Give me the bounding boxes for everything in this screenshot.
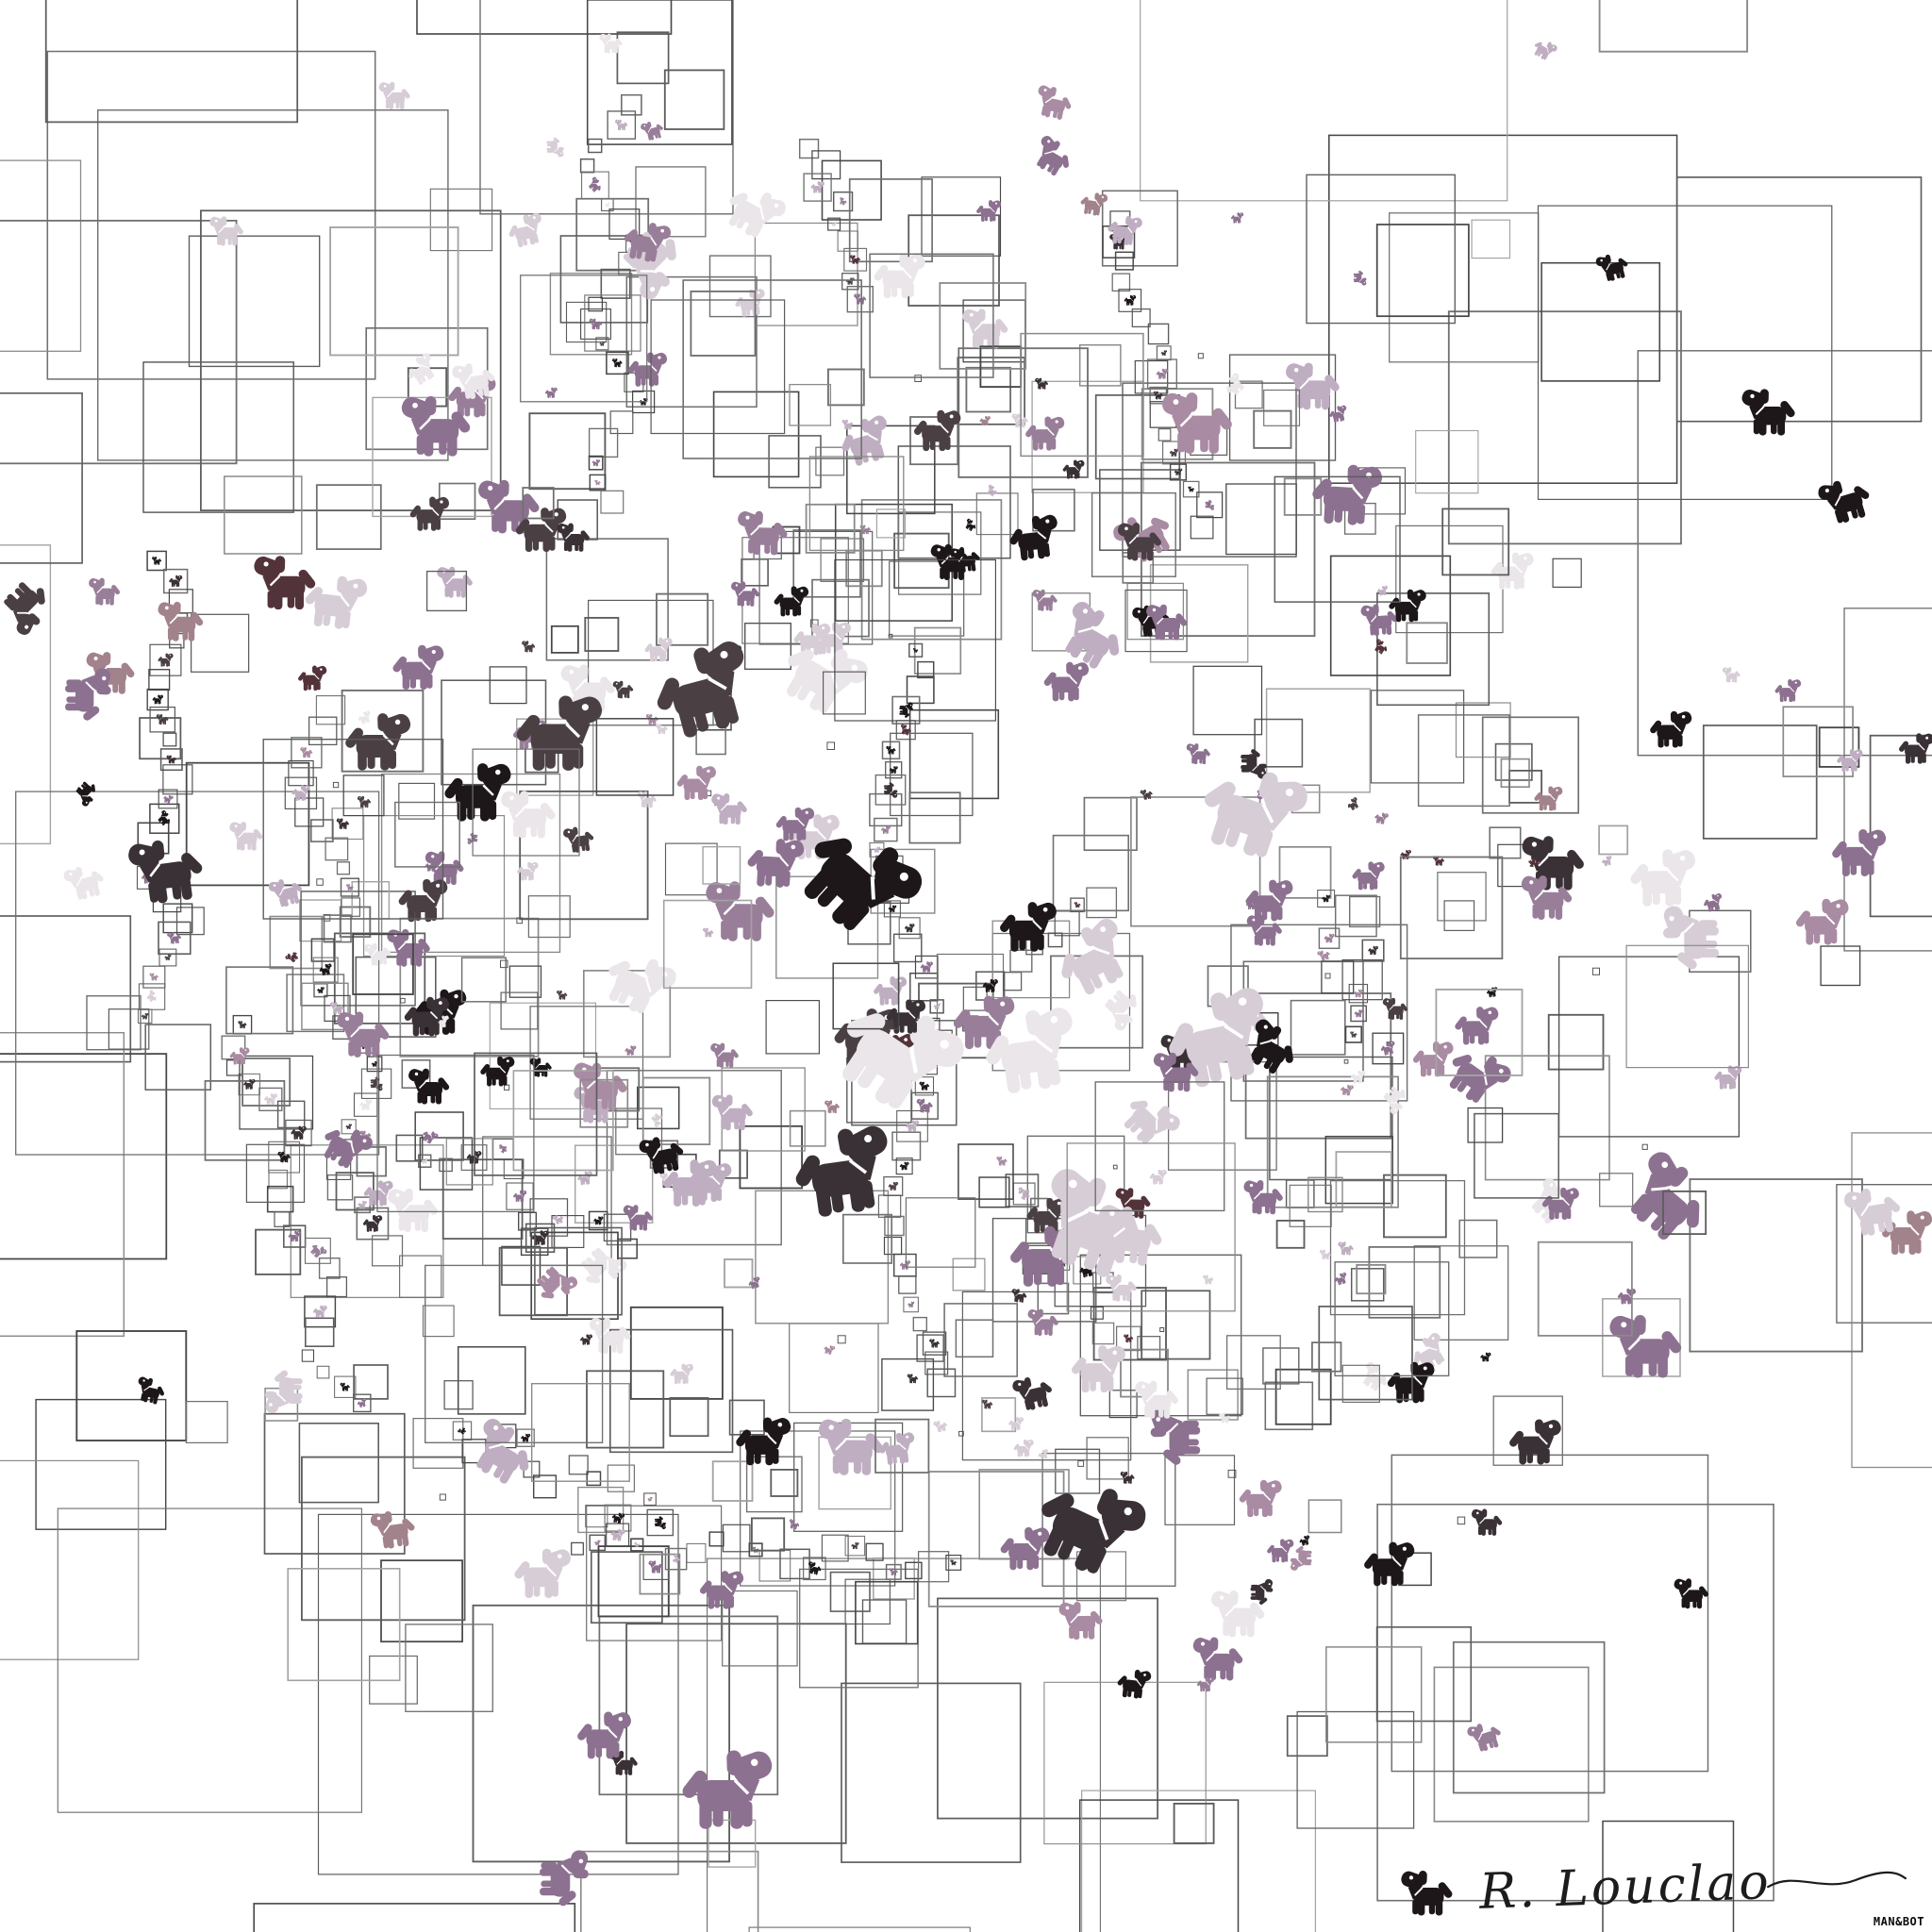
- dog-icon: [407, 1063, 450, 1105]
- dog-icon: [356, 708, 374, 725]
- dog-icon: [932, 1417, 949, 1433]
- dog-icon: [59, 856, 108, 904]
- square-outline: [617, 32, 668, 83]
- dog-icon: [824, 1098, 840, 1113]
- square-outline: [966, 368, 1010, 412]
- square-outline: [333, 782, 338, 787]
- dog-icon: [314, 1110, 380, 1175]
- square-outline: [0, 160, 81, 351]
- dog-icon: [283, 948, 300, 965]
- square-outline: [769, 436, 821, 488]
- dog-icon: [1011, 411, 1028, 427]
- square-outline: [1174, 1804, 1214, 1843]
- dog-icon: [595, 934, 687, 1024]
- square-outline: [377, 1056, 534, 1212]
- square-outline: [578, 1488, 624, 1533]
- dog-icon: [647, 1496, 653, 1501]
- dog-icon: [71, 777, 104, 810]
- dog-icon: [888, 1180, 898, 1191]
- dog-icon: [123, 824, 208, 908]
- dog-icon: [599, 341, 605, 346]
- square-outline: [330, 227, 458, 356]
- square-outline: [918, 662, 934, 678]
- square-outline: [1004, 973, 1022, 991]
- square-outline: [741, 559, 768, 586]
- square-outline: [730, 1400, 764, 1434]
- dog-icon: [367, 1502, 418, 1552]
- square-outline: [1457, 1517, 1465, 1524]
- square-outline: [708, 1558, 1101, 1932]
- square-outline: [327, 1277, 347, 1297]
- dog-icon: [152, 693, 163, 705]
- square-outline: [306, 1318, 334, 1346]
- square-outline: [246, 1144, 304, 1202]
- dog-icon: [884, 782, 900, 799]
- square-outline: [425, 1265, 603, 1442]
- square-outline: [1082, 1790, 1316, 1932]
- dog-icon: [575, 1704, 633, 1758]
- square-outline: [354, 1365, 388, 1399]
- square-outline: [430, 189, 491, 250]
- square-outline: [1109, 1391, 1137, 1418]
- square-outline: [1113, 1165, 1117, 1169]
- square-outline: [36, 1400, 166, 1530]
- square-outline: [87, 996, 141, 1050]
- dog-icon: [1031, 586, 1058, 611]
- square-outline: [572, 1542, 584, 1555]
- dog-icon: [1399, 1863, 1454, 1915]
- square-outline: [1226, 484, 1297, 555]
- square-outline: [226, 967, 293, 1034]
- dog-icon: [580, 1333, 593, 1345]
- square-outline: [505, 1085, 509, 1090]
- dog-icon: [905, 923, 915, 933]
- dog-icon: [300, 563, 372, 632]
- square-outline: [1539, 206, 1832, 499]
- square-outline: [1852, 1133, 1932, 1468]
- square-outline: [0, 1054, 166, 1258]
- square-outline: [401, 998, 406, 1003]
- dog-icon: [1628, 841, 1697, 907]
- square-outline: [1198, 354, 1203, 358]
- square-outline: [521, 275, 647, 402]
- square-outline: [1434, 1667, 1588, 1821]
- square-outline: [590, 428, 618, 457]
- dog-icon: [1327, 402, 1349, 424]
- dog-icon: [166, 929, 182, 944]
- dog-icon: [1242, 1174, 1284, 1214]
- square-outline: [288, 1569, 400, 1681]
- dog-icon: [982, 1398, 993, 1408]
- square-outline: [1377, 593, 1489, 705]
- dog-icon: [1649, 705, 1693, 747]
- square-outline: [316, 696, 344, 724]
- dog-icon: [317, 986, 325, 993]
- dog-icon: [1244, 873, 1294, 921]
- dog-icon: [1231, 210, 1244, 223]
- square-outline: [1322, 961, 1354, 993]
- square-outline: [1483, 717, 1579, 813]
- dog-icon: [612, 358, 623, 368]
- square-outline: [1287, 1180, 1314, 1207]
- dog-icon: [833, 406, 898, 469]
- square-outline: [1268, 1076, 1398, 1207]
- square-outline: [1501, 759, 1529, 788]
- dog-icon: [615, 118, 628, 130]
- square-outline: [225, 476, 302, 554]
- dog-icon: [1149, 1167, 1167, 1184]
- square-outline: [827, 742, 835, 750]
- dog-icon: [1376, 584, 1390, 596]
- dog-icon: [0, 574, 64, 644]
- dog-icon: [1600, 854, 1614, 867]
- square-outline: [1191, 516, 1213, 539]
- dog-icon: [513, 1189, 527, 1202]
- dog-icon: [1592, 246, 1632, 285]
- square-outline: [915, 375, 922, 382]
- square-outline: [275, 1212, 290, 1227]
- dog-icon: [545, 386, 558, 398]
- dog-icon: [1206, 500, 1216, 511]
- square-outline: [143, 362, 293, 512]
- square-outline: [399, 783, 435, 819]
- square-outline: [299, 1424, 378, 1503]
- square-outline: [927, 1369, 955, 1396]
- dog-icon: [1898, 728, 1932, 764]
- dog-icon: [899, 1160, 909, 1170]
- square-outline: [651, 300, 785, 434]
- dog-icon: [345, 1123, 352, 1129]
- square-outline: [710, 256, 772, 317]
- square-outline: [794, 1423, 903, 1531]
- dog-icon: [359, 1097, 373, 1109]
- dog-icon: [655, 722, 668, 734]
- dog-icon: [851, 1541, 859, 1549]
- square-outline: [1553, 558, 1581, 587]
- dog-icon: [919, 1080, 929, 1091]
- generative-artwork: [0, 0, 1932, 1932]
- dog-icon: [1486, 985, 1499, 997]
- dog-icon: [900, 1258, 911, 1269]
- dog-icon: [1338, 1240, 1354, 1256]
- square-outline: [163, 904, 192, 933]
- dog-icon: [1794, 891, 1850, 945]
- square-outline: [1312, 1342, 1341, 1372]
- dog-icon: [718, 170, 795, 246]
- dog-icon: [1188, 486, 1194, 492]
- square-outline: [1087, 888, 1117, 918]
- square-outline: [532, 1384, 630, 1482]
- square-outline: [953, 1258, 985, 1291]
- square-outline: [909, 792, 959, 842]
- dog-icon: [730, 577, 760, 607]
- square-outline: [856, 1582, 918, 1644]
- square-outline: [670, 1398, 708, 1436]
- square-outline: [341, 908, 371, 938]
- square-outline: [1267, 689, 1371, 792]
- square-outline: [687, 1543, 706, 1562]
- square-outline: [569, 1456, 588, 1474]
- square-outline: [1010, 950, 1032, 972]
- dog-icon: [1238, 1474, 1283, 1517]
- dog-icon: [1354, 1008, 1363, 1017]
- square-outline: [490, 667, 526, 704]
- dog-icon: [1812, 466, 1876, 528]
- dog-icon: [1120, 1470, 1135, 1484]
- dog-icon: [208, 211, 244, 245]
- square-outline: [1414, 1246, 1508, 1341]
- square-outline: [546, 539, 668, 660]
- square-outline: [186, 1402, 227, 1443]
- dog-icon: [297, 661, 327, 691]
- dog-icon: [1480, 1351, 1491, 1361]
- dog-icon: [982, 977, 998, 992]
- square-outline: [1377, 1505, 1774, 1901]
- square-outline: [1490, 827, 1521, 858]
- dog-icon: [312, 1304, 327, 1318]
- square-outline: [740, 1126, 802, 1189]
- dog-icon: [356, 1396, 368, 1408]
- dog-icon: [1174, 467, 1183, 475]
- dog-icon: [907, 1373, 918, 1384]
- dog-icon: [336, 816, 349, 828]
- dog-icon: [243, 1077, 256, 1090]
- square-outline: [357, 1147, 386, 1176]
- dog-icon: [586, 175, 607, 195]
- square-outline: [1704, 725, 1817, 839]
- dog-icon: [340, 1381, 350, 1391]
- square-outline: [1472, 220, 1509, 258]
- dog-icon: [1701, 890, 1724, 912]
- square-outline: [145, 1024, 210, 1090]
- square-outline: [1188, 1370, 1238, 1420]
- square-outline: [910, 974, 938, 1001]
- square-outline: [240, 1056, 313, 1129]
- square-outline: [724, 1259, 753, 1288]
- square-outline: [76, 1331, 186, 1441]
- square-outline: [587, 1371, 663, 1447]
- square-outline: [98, 110, 448, 460]
- dog-icon: [1124, 1333, 1134, 1342]
- square-outline: [790, 385, 830, 425]
- square-outline: [254, 1904, 575, 1932]
- square-outline: [910, 710, 999, 799]
- dog-icon: [1042, 656, 1091, 701]
- square-outline: [552, 626, 578, 653]
- square-outline: [400, 1256, 441, 1297]
- square-outline: [908, 676, 934, 703]
- dog-icon: [530, 1258, 585, 1313]
- square-outline: [309, 717, 337, 744]
- square-outline: [587, 1472, 600, 1485]
- dog-icon: [950, 1558, 957, 1565]
- square-outline: [906, 1562, 922, 1578]
- dog-icon: [996, 1155, 1008, 1165]
- dog-icon: [149, 972, 158, 980]
- square-outline: [980, 346, 1021, 387]
- dog-icon: [1160, 349, 1167, 356]
- square-outline: [898, 446, 1010, 558]
- dog-icon: [626, 347, 668, 387]
- square-outline: [752, 1518, 784, 1550]
- dog-icon: [504, 207, 548, 250]
- square-outline: [187, 763, 309, 886]
- square-outline: [320, 1258, 340, 1278]
- dog-icon: [703, 926, 714, 937]
- dogs-layer: [0, 0, 1932, 1932]
- square-outline: [938, 1598, 1158, 1818]
- square-outline: [529, 413, 605, 489]
- dog-icon: [1251, 1578, 1277, 1606]
- dog-icon: [436, 561, 474, 597]
- dog-icon: [329, 1000, 344, 1014]
- square-outline: [206, 1081, 285, 1160]
- dog-icon: [576, 1169, 593, 1186]
- dog-icon: [357, 794, 371, 808]
- dog-icon: [1316, 947, 1332, 962]
- square-outline: [519, 1212, 537, 1230]
- dog-icon: [456, 1424, 467, 1436]
- square-outline: [0, 1033, 124, 1337]
- square-outline: [1549, 1015, 1604, 1070]
- square-outline: [958, 1144, 1013, 1199]
- dog-icon: [841, 418, 854, 429]
- square-outline: [149, 670, 170, 691]
- dog-icon: [377, 77, 410, 109]
- dog-icon: [556, 519, 591, 552]
- square-outline: [919, 1552, 949, 1582]
- dog-icon: [998, 894, 1058, 952]
- dog-icon: [144, 988, 160, 1004]
- dog-icon: [854, 292, 867, 305]
- square-outline: [1038, 1283, 1068, 1313]
- square-outline: [622, 95, 641, 115]
- dog-icon: [1013, 1437, 1034, 1457]
- dog-icon: [709, 1039, 740, 1067]
- dog-icon: [605, 202, 610, 208]
- square-outline: [1325, 974, 1330, 978]
- dog-icon: [999, 1520, 1051, 1570]
- signature-flourish-icon: [1765, 1865, 1907, 1898]
- square-outline: [1541, 263, 1659, 381]
- square-outline: [581, 1852, 758, 1932]
- square-outline: [1254, 411, 1291, 448]
- dog-icon: [498, 1144, 507, 1154]
- dog-icon: [521, 1432, 531, 1441]
- dog-icon: [1607, 1305, 1683, 1377]
- square-outline: [917, 1335, 943, 1361]
- square-outline: [302, 1350, 313, 1361]
- square-outline: [1095, 1082, 1224, 1211]
- square-outline: [1263, 1348, 1299, 1384]
- square-outline: [1559, 957, 1740, 1137]
- dog-icon: [1350, 1030, 1357, 1037]
- square-outline: [636, 167, 706, 237]
- dog-icon: [912, 404, 962, 451]
- dog-icon: [1024, 411, 1066, 451]
- dog-icon: [1026, 1305, 1059, 1336]
- dog-icon: [1010, 1286, 1028, 1303]
- dog-icon: [975, 196, 1002, 221]
- square-outline: [723, 1524, 750, 1552]
- dog-icon: [838, 195, 848, 206]
- square-outline: [190, 236, 320, 366]
- square-outline: [780, 1549, 809, 1578]
- dog-icon: [264, 1091, 278, 1105]
- dog-icon: [1673, 1574, 1709, 1608]
- watermark: MAN&BOT: [1874, 1916, 1924, 1927]
- dog-icon: [1654, 904, 1719, 972]
- square-outline: [1092, 1323, 1113, 1343]
- square-outline: [800, 1569, 918, 1687]
- dog-icon: [1062, 457, 1085, 478]
- square-outline: [1350, 897, 1380, 927]
- dog-icon: [1139, 787, 1153, 801]
- square-outline: [1054, 836, 1129, 911]
- square-outline: [343, 775, 384, 816]
- dog-icon: [1379, 1039, 1397, 1057]
- dog-icon: [442, 754, 513, 822]
- square-outline: [1158, 429, 1171, 441]
- dog-icon: [1612, 1136, 1730, 1253]
- dog-icon: [1124, 293, 1136, 306]
- square-outline: [201, 210, 501, 510]
- dog-icon: [1324, 932, 1335, 942]
- square-outline: [1600, 0, 1748, 52]
- square-outline: [1291, 1001, 1345, 1055]
- dog-icon: [1714, 1061, 1743, 1089]
- dog-icon: [1266, 1535, 1294, 1562]
- dog-icon: [831, 222, 837, 226]
- dog-icon: [1454, 1000, 1500, 1044]
- dog-icon: [886, 744, 896, 754]
- dog-icon: [238, 1020, 247, 1028]
- dog-icon: [655, 1516, 668, 1530]
- square-outline: [791, 1111, 825, 1146]
- square-outline: [1844, 608, 1932, 951]
- square-outline: [163, 733, 176, 746]
- square-outline: [0, 916, 130, 1062]
- square-outline: [1227, 1336, 1281, 1390]
- square-outline: [601, 491, 624, 513]
- square-outline: [831, 1573, 871, 1612]
- dog-icon: [155, 808, 175, 828]
- square-outline: [1160, 1328, 1164, 1332]
- square-outline: [1078, 1461, 1084, 1467]
- dog-icon: [1774, 675, 1802, 702]
- dog-icon: [773, 581, 809, 616]
- dog-icon: [1219, 369, 1249, 399]
- dog-icon: [644, 634, 674, 662]
- square-outline: [1599, 825, 1627, 854]
- dog-icon: [1830, 822, 1888, 876]
- square-outline: [1270, 1058, 1392, 1180]
- square-outline: [1116, 252, 1134, 270]
- dog-icon: [876, 1426, 918, 1466]
- square-outline: [317, 879, 324, 886]
- dog-icon: [639, 115, 666, 142]
- dog-icon: [158, 651, 174, 667]
- square-outline: [800, 140, 819, 158]
- dog-icon: [466, 832, 478, 844]
- square-outline: [1141, 0, 1507, 201]
- dog-icon: [1032, 79, 1076, 122]
- square-outline: [1308, 1500, 1341, 1532]
- square-outline: [46, 0, 298, 122]
- dog-icon: [961, 302, 1009, 348]
- square-outline: [327, 1175, 352, 1200]
- square-outline: [417, 0, 672, 34]
